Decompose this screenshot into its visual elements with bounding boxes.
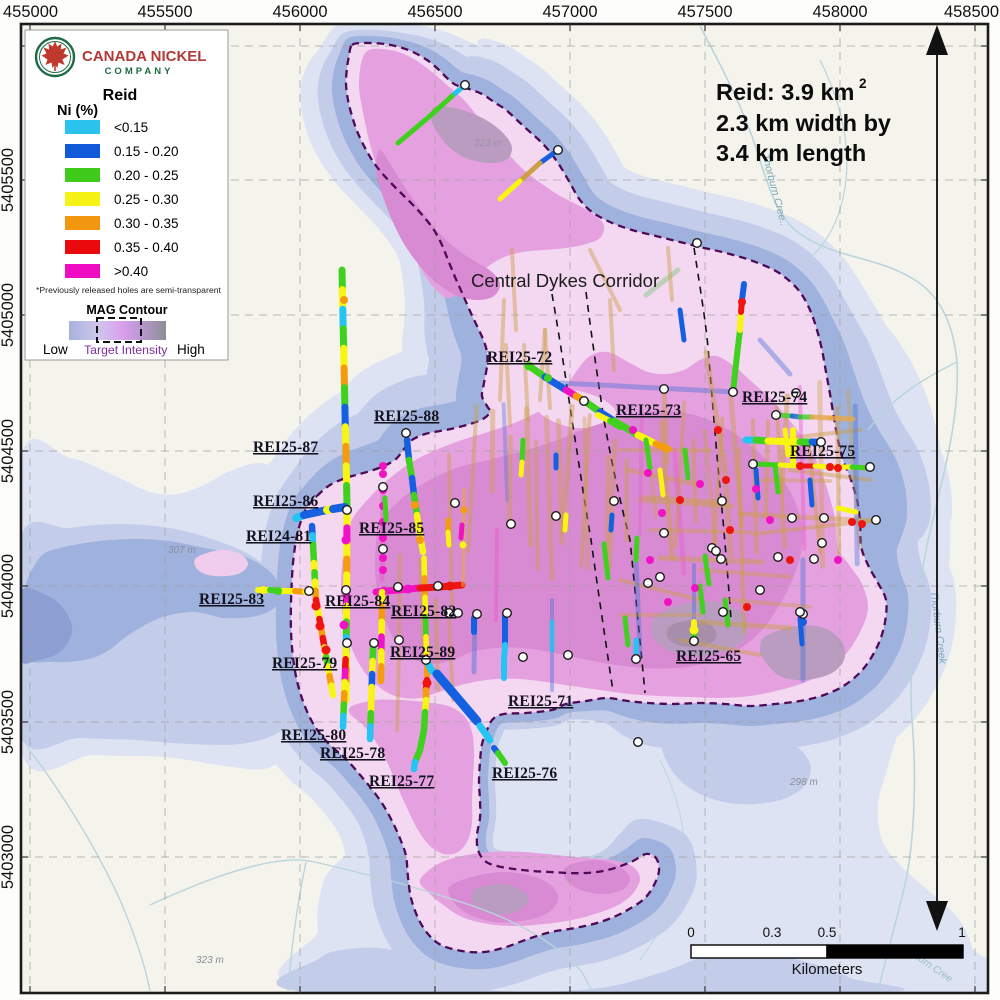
svg-text:5404000: 5404000 [0,554,17,618]
svg-text:REI25-80: REI25-80 [281,727,346,744]
svg-text:5405500: 5405500 [0,148,17,212]
svg-text:REI25-77: REI25-77 [369,773,434,790]
svg-text:Target Intensity: Target Intensity [84,343,168,357]
svg-text:0: 0 [687,925,695,940]
svg-text:REI25-87: REI25-87 [253,439,318,456]
svg-text:Kilometers: Kilometers [792,961,863,978]
svg-text:458500: 458500 [944,3,999,21]
svg-text:REI25-88: REI25-88 [374,408,439,425]
svg-text:Central Dykes Corridor: Central Dykes Corridor [471,270,659,291]
svg-text:0.3: 0.3 [763,925,782,940]
svg-text:REI25-76: REI25-76 [492,765,557,782]
svg-text:3.4 km length: 3.4 km length [716,140,866,166]
svg-text:REI25-86: REI25-86 [253,493,318,510]
svg-text:REI25-65: REI25-65 [676,648,741,665]
svg-text:5404500: 5404500 [0,419,17,483]
svg-text:REI25-71: REI25-71 [508,693,573,710]
svg-text:2: 2 [859,76,867,91]
svg-text:Low: Low [43,342,68,357]
svg-text:Ni (%): Ni (%) [57,103,98,119]
svg-text:307 m: 307 m [168,545,196,556]
svg-text:High: High [177,342,205,357]
svg-text:<0.15: <0.15 [114,120,148,135]
svg-text:0.15 - 0.20: 0.15 - 0.20 [114,144,179,159]
svg-text:456500: 456500 [407,3,462,21]
svg-text:455500: 455500 [137,3,192,21]
svg-text:CANADA NICKEL: CANADA NICKEL [82,48,206,65]
svg-text:>0.40: >0.40 [114,264,148,279]
svg-text:REI24-81: REI24-81 [246,528,311,545]
svg-text:REI25-89: REI25-89 [390,644,455,661]
svg-text:298 m: 298 m [789,777,818,788]
svg-text:458000: 458000 [812,3,867,21]
svg-text:REI25-82: REI25-82 [391,603,456,620]
svg-text:REI25-79: REI25-79 [272,655,337,672]
svg-text:*Previously released holes are: *Previously released holes are semi-tran… [36,285,222,295]
svg-text:REI25-72: REI25-72 [487,349,552,366]
svg-text:0.20 - 0.25: 0.20 - 0.25 [114,168,179,183]
svg-text:REI25-84: REI25-84 [325,593,390,610]
svg-text:323 m: 323 m [196,955,224,966]
svg-text:REI25-75: REI25-75 [790,443,855,460]
svg-text:COMPANY: COMPANY [105,66,174,77]
svg-text:455000: 455000 [3,3,58,21]
svg-text:457500: 457500 [677,3,732,21]
svg-text:0.5: 0.5 [818,925,837,940]
svg-text:REI25-73: REI25-73 [616,402,681,419]
svg-text:MAG Contour: MAG Contour [86,303,167,317]
svg-text:Reid: Reid [103,87,138,104]
svg-text:Reid: 3.9 km: Reid: 3.9 km [716,79,854,105]
svg-text:0.30 - 0.35: 0.30 - 0.35 [114,216,179,231]
svg-text:0.25 - 0.30: 0.25 - 0.30 [114,192,179,207]
svg-text:REI25-78: REI25-78 [320,745,385,762]
svg-text:457000: 457000 [542,3,597,21]
svg-text:REI25-74: REI25-74 [742,389,807,406]
svg-text:5403500: 5403500 [0,690,17,754]
svg-text:456000: 456000 [272,3,327,21]
svg-text:5403000: 5403000 [0,825,17,889]
svg-text:REI25-85: REI25-85 [359,520,424,537]
svg-text:323 m: 323 m [474,138,502,149]
svg-text:1: 1 [958,925,966,940]
svg-text:5405000: 5405000 [0,283,17,347]
svg-text:2.3 km width by: 2.3 km width by [716,110,891,136]
svg-text:REI25-83: REI25-83 [199,591,264,608]
svg-text:0.35 - 0.40: 0.35 - 0.40 [114,240,179,255]
